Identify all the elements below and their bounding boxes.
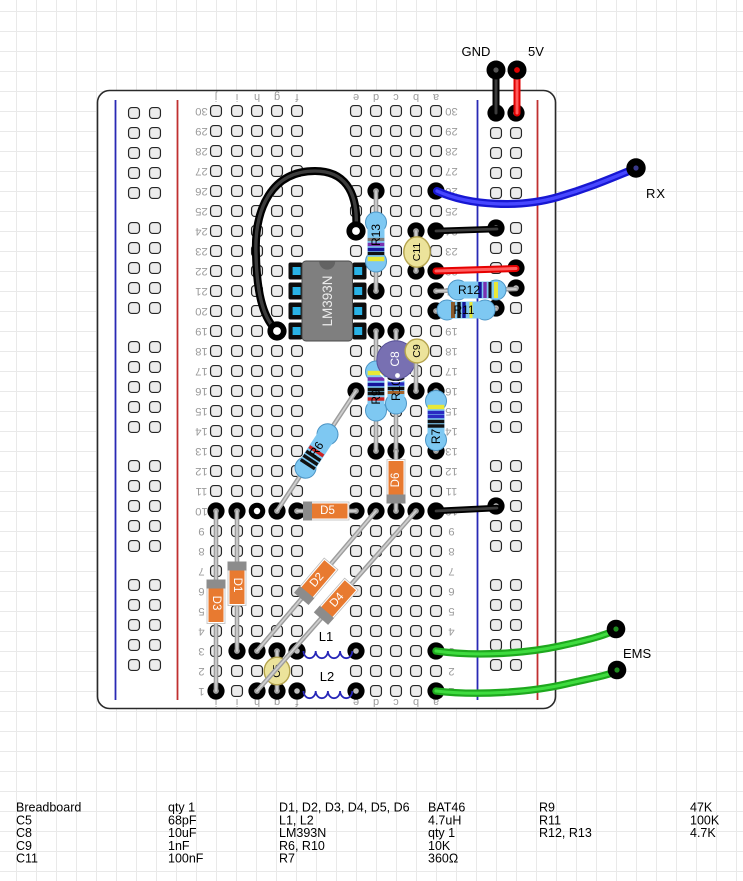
svg-text:7: 7: [198, 565, 204, 577]
svg-text:L2: L2: [320, 669, 334, 684]
svg-text:16: 16: [445, 385, 458, 397]
svg-text:C9: C9: [411, 344, 423, 358]
svg-text:D1: D1: [231, 578, 243, 593]
svg-text:LM393N: LM393N: [320, 275, 335, 326]
svg-text:13: 13: [445, 445, 458, 457]
svg-text:c: c: [393, 91, 399, 103]
svg-text:17: 17: [445, 365, 458, 377]
svg-text:L1: L1: [319, 629, 333, 644]
svg-text:R7: R7: [279, 852, 295, 866]
svg-text:24: 24: [195, 225, 208, 237]
svg-text:8: 8: [198, 545, 204, 557]
svg-text:6: 6: [198, 585, 204, 597]
svg-text:15: 15: [195, 405, 208, 417]
svg-text:20: 20: [195, 305, 208, 317]
svg-text:R11: R11: [453, 303, 474, 317]
svg-text:15: 15: [445, 405, 458, 417]
svg-text:23: 23: [445, 245, 458, 257]
svg-text:11: 11: [446, 485, 458, 497]
svg-text:13: 13: [195, 445, 208, 457]
svg-text:16: 16: [195, 385, 208, 397]
svg-text:29: 29: [445, 125, 458, 137]
svg-text:18: 18: [445, 345, 458, 357]
svg-text:8: 8: [448, 545, 454, 557]
svg-text:e: e: [353, 91, 359, 103]
svg-text:27: 27: [195, 165, 208, 177]
svg-text:100nF: 100nF: [168, 852, 204, 866]
svg-text:b: b: [413, 696, 419, 708]
svg-text:j: j: [215, 91, 218, 103]
svg-text:9: 9: [448, 525, 454, 537]
svg-text:EMS: EMS: [623, 646, 652, 661]
svg-text:D6: D6: [390, 473, 402, 488]
svg-text:6: 6: [448, 585, 454, 597]
svg-text:19: 19: [445, 325, 458, 337]
svg-text:C11: C11: [16, 852, 38, 866]
svg-text:d: d: [373, 91, 379, 103]
svg-text:28: 28: [445, 145, 458, 157]
svg-text:i: i: [236, 696, 238, 708]
svg-text:14: 14: [195, 425, 208, 437]
svg-text:3: 3: [198, 645, 204, 657]
svg-text:b: b: [413, 91, 419, 103]
svg-text:7: 7: [448, 565, 454, 577]
svg-text:D5: D5: [320, 505, 335, 517]
svg-text:5: 5: [198, 605, 204, 617]
svg-text:4.7K: 4.7K: [690, 826, 716, 840]
svg-text:10: 10: [195, 505, 208, 517]
svg-text:c: c: [393, 696, 399, 708]
svg-text:h: h: [254, 91, 260, 103]
svg-text:R7: R7: [429, 429, 443, 445]
svg-text:14: 14: [445, 425, 458, 437]
svg-text:11: 11: [196, 485, 208, 497]
svg-text:27: 27: [445, 165, 458, 177]
svg-text:1: 1: [198, 685, 204, 697]
svg-text:R9: R9: [369, 389, 383, 405]
svg-text:C8: C8: [388, 351, 402, 367]
svg-text:21: 21: [195, 285, 208, 297]
svg-text:a: a: [432, 91, 439, 103]
svg-text:i: i: [236, 91, 238, 103]
svg-text:4: 4: [448, 625, 454, 637]
svg-text:30: 30: [195, 105, 208, 117]
svg-text:360Ω: 360Ω: [428, 852, 458, 866]
svg-text:4: 4: [198, 625, 204, 637]
svg-text:R12, R13: R12, R13: [539, 826, 592, 840]
svg-text:2: 2: [448, 665, 454, 677]
svg-text:D3: D3: [210, 596, 222, 611]
svg-text:5: 5: [448, 605, 454, 617]
svg-text:19: 19: [195, 325, 208, 337]
svg-text:12: 12: [445, 465, 458, 477]
svg-text:12: 12: [195, 465, 208, 477]
svg-text:28: 28: [195, 145, 208, 157]
svg-text:R13: R13: [369, 224, 383, 246]
svg-text:30: 30: [445, 105, 458, 117]
svg-text:17: 17: [195, 365, 208, 377]
svg-text:25: 25: [445, 205, 458, 217]
svg-text:g: g: [274, 91, 280, 103]
svg-text:GND: GND: [462, 44, 491, 59]
svg-text:18: 18: [195, 345, 208, 357]
svg-text:26: 26: [195, 185, 208, 197]
svg-text:R12: R12: [458, 283, 480, 297]
svg-text:23: 23: [195, 245, 208, 257]
svg-text:22: 22: [195, 265, 208, 277]
svg-text:25: 25: [195, 205, 208, 217]
svg-text:RX: RX: [646, 186, 666, 201]
svg-text:29: 29: [195, 125, 208, 137]
svg-text:d: d: [373, 696, 379, 708]
svg-text:C11: C11: [411, 243, 423, 262]
svg-text:2: 2: [198, 665, 204, 677]
svg-text:9: 9: [198, 525, 204, 537]
svg-text:5V: 5V: [528, 44, 544, 59]
